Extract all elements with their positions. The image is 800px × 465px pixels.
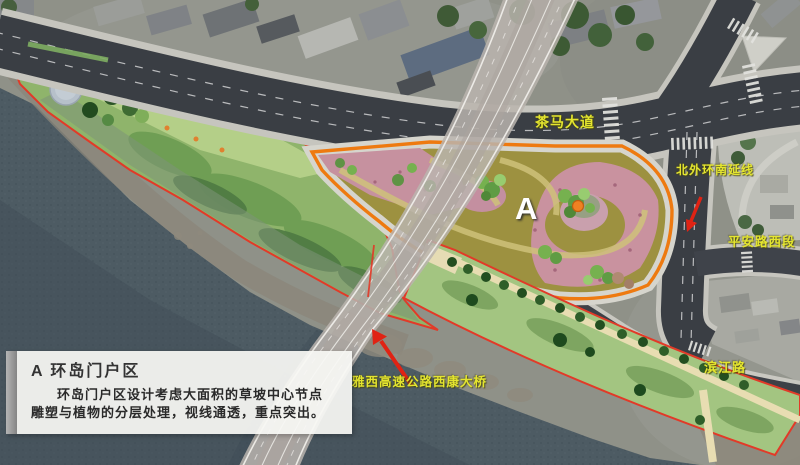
- road-label-pingan: 平安路西段: [728, 236, 796, 249]
- road-label-beiwaihuan: 北外环南延线: [676, 164, 754, 176]
- legend-box-side-bar: [6, 351, 17, 434]
- legend-body-line-1: 环岛门户区设计考虑大面积的草坡中心节点: [31, 386, 342, 404]
- legend-body-line-2: 雕塑与植物的分层处理，视线通透，重点突出。: [31, 404, 342, 422]
- legend-title: A 环岛门户区: [31, 357, 342, 381]
- sculpture-node-dot: [573, 201, 584, 212]
- road-label-chama-avenue: 茶马大道: [535, 115, 595, 129]
- road-label-binjiang: 滨江路: [704, 361, 746, 374]
- beiwaihuan-road: [682, 126, 706, 350]
- master-plan-page: 茶马大道 北外环南延线 平安路西段 滨江路 雅西高速公路西康大桥 A A 环岛门…: [0, 0, 800, 465]
- legend-box: A 环岛门户区 环岛门户区设计考虑大面积的草坡中心节点 雕塑与植物的分层处理，视…: [6, 351, 352, 434]
- road-label-expressway-bridge: 雅西高速公路西康大桥: [352, 376, 487, 389]
- zone-a-marker: A: [515, 193, 537, 224]
- legend-box-content: A 环岛门户区 环岛门户区设计考虑大面积的草坡中心节点 雕塑与植物的分层处理，视…: [17, 351, 352, 434]
